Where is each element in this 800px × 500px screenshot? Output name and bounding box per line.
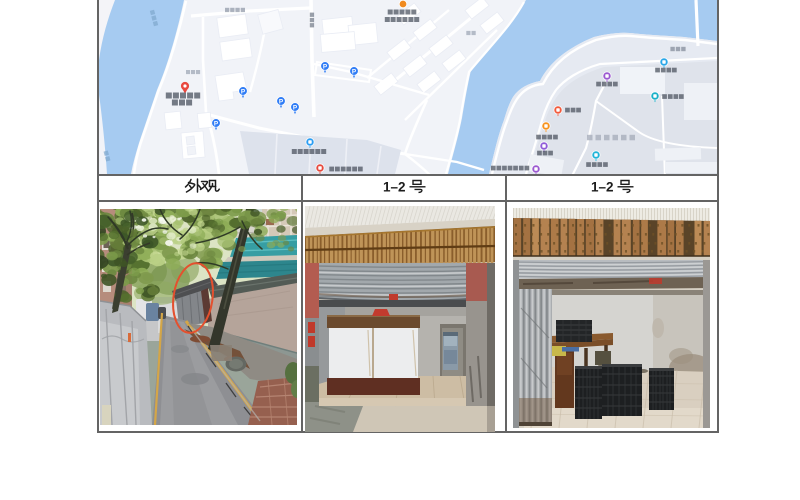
svg-text:P: P [293, 104, 298, 111]
svg-text:P: P [352, 68, 357, 75]
svg-text:P: P [279, 98, 284, 105]
svg-text:P: P [214, 120, 219, 127]
svg-text:1–2: 1–2 [383, 180, 406, 195]
svg-text:1–2: 1–2 [591, 180, 614, 195]
svg-text:P: P [241, 88, 246, 95]
svg-text:P: P [323, 63, 328, 70]
